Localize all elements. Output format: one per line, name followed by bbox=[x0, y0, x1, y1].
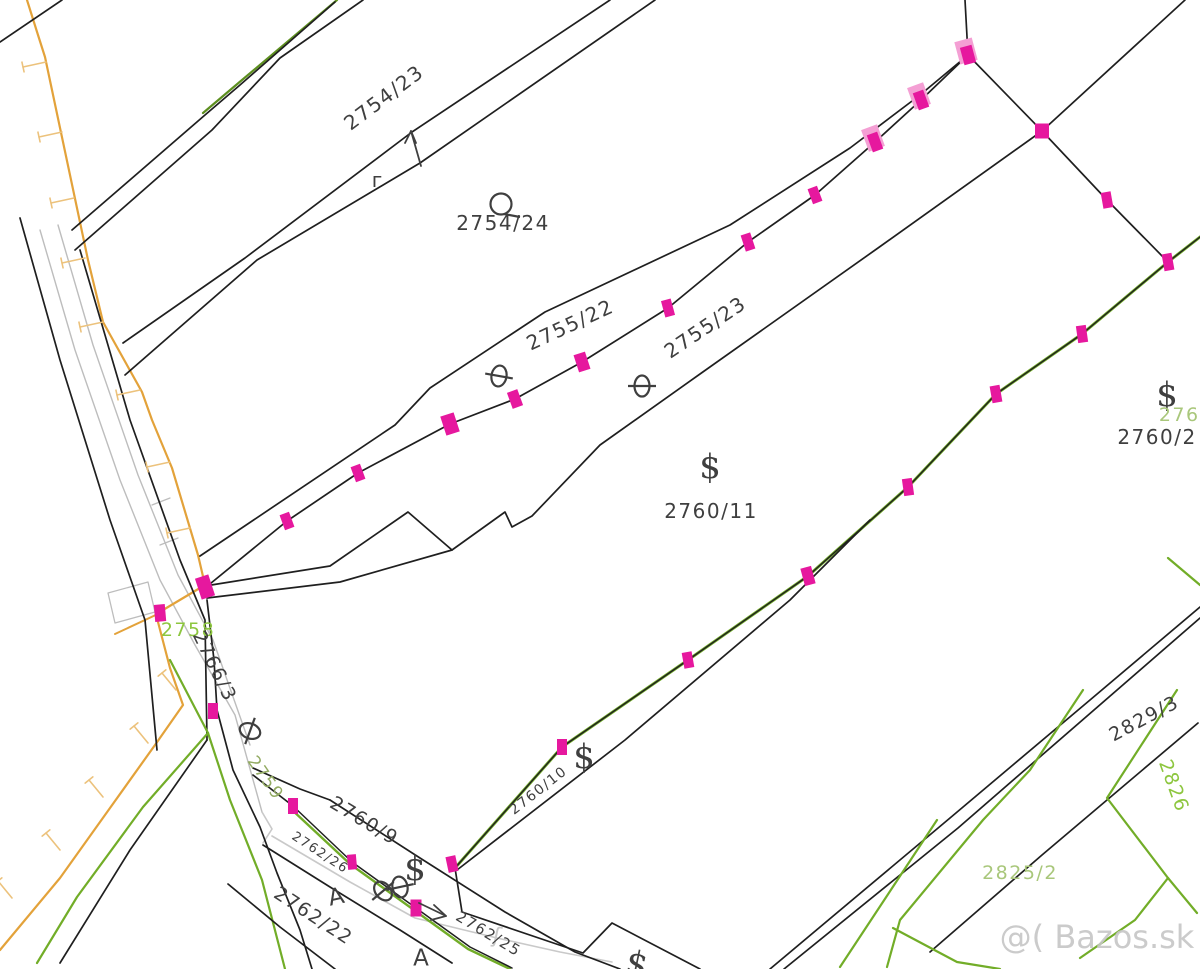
parcel-label-2759: 2759 bbox=[243, 752, 288, 804]
boundary-tick-bar bbox=[166, 528, 168, 538]
boundary-m1 bbox=[123, 0, 610, 343]
boundary-tick-bar bbox=[79, 322, 81, 332]
boundary-x1 bbox=[770, 607, 1200, 969]
boundary-change-marker bbox=[1101, 191, 1114, 208]
landuse-dollar-symbol: $ bbox=[699, 447, 721, 487]
boundary-tick-bar bbox=[146, 462, 148, 472]
boundary-change-marker bbox=[351, 464, 366, 482]
boundary-change-marker bbox=[411, 900, 422, 917]
parcel-label-2760-11: 2760/11 bbox=[664, 499, 758, 523]
boundary-change-marker bbox=[557, 739, 567, 755]
boundary-tick bbox=[117, 390, 140, 395]
parcel-label-2766-3: 2766/3 bbox=[188, 627, 241, 705]
boundary-tick bbox=[134, 726, 148, 743]
boundary-tick-bar bbox=[50, 198, 52, 208]
map-stage: $$$$$AAгʃ2754/232754/242755/222755/23276… bbox=[0, 0, 1200, 969]
boundary-tick bbox=[51, 198, 74, 203]
green-br-3 bbox=[893, 928, 1000, 969]
green-wedge-a bbox=[170, 660, 208, 733]
boundary-change-marker bbox=[682, 651, 695, 668]
landuse-theta-bar bbox=[245, 718, 255, 744]
parcel-label-2754-24: 2754/24 bbox=[456, 211, 550, 235]
boundary-change-marker bbox=[280, 512, 295, 530]
boundary-tick bbox=[80, 322, 103, 327]
parcel-label-2755-23: 2755/23 bbox=[660, 291, 751, 363]
boundary-tick-bar bbox=[116, 390, 118, 400]
boundary-change-marker bbox=[800, 566, 815, 586]
boundary-tick bbox=[0, 881, 12, 898]
parcel-label-2825-2: 2825/2 bbox=[982, 862, 1058, 884]
boundary-tick bbox=[39, 132, 62, 137]
boundary-change-marker bbox=[1035, 124, 1049, 139]
landuse-dollar-symbol: $ bbox=[404, 849, 426, 889]
boundary-topleft-a bbox=[72, 2, 335, 230]
orange-boundary-upper bbox=[27, 0, 205, 585]
landuse-dollar-symbol: $ bbox=[573, 737, 595, 777]
landuse-letter-a-symbol: A bbox=[326, 883, 347, 912]
boundary-change-marker bbox=[288, 798, 298, 814]
gray-building-outline bbox=[108, 582, 155, 623]
boundary-topleft-b bbox=[75, 0, 363, 250]
landuse-letter-ge-symbol: г bbox=[372, 168, 383, 192]
boundary-change-marker bbox=[741, 232, 756, 251]
boundary-change-marker bbox=[440, 412, 459, 435]
road-black-left bbox=[20, 218, 157, 750]
road-gray-edge-1 bbox=[40, 230, 262, 812]
parcel-label-2829-3: 2829/3 bbox=[1106, 691, 1183, 746]
parcel-label-2826: 2826 bbox=[1154, 757, 1193, 816]
boundary-tick bbox=[167, 528, 190, 533]
road-gray-stub-1 bbox=[152, 498, 170, 505]
boundary-tick bbox=[147, 462, 170, 467]
green-edge-stub bbox=[1168, 558, 1200, 585]
watermark-text: @( Bazos.sk bbox=[1000, 918, 1195, 956]
boundary-tick bbox=[46, 833, 60, 850]
green-wedge-b bbox=[37, 733, 208, 963]
boundary-tick bbox=[62, 258, 85, 263]
boundary-tick bbox=[89, 780, 103, 797]
boundary-tick-bar bbox=[38, 132, 40, 142]
boundary-change-marker bbox=[507, 389, 523, 409]
landuse-dollar-symbol: $ bbox=[622, 942, 651, 969]
parcel-label-2760-9: 2760/9 bbox=[326, 792, 402, 850]
cadastral-map-image[interactable]: $$$$$AAгʃ2754/232754/242755/222755/23276… bbox=[0, 0, 1200, 969]
boundary-change-marker bbox=[808, 186, 823, 204]
road-gray-stub-2 bbox=[160, 538, 178, 545]
boundary-change-marker bbox=[574, 352, 591, 373]
boundary-change-marker bbox=[445, 855, 458, 873]
parcel-label-2754-23: 2754/23 bbox=[339, 60, 428, 135]
parcel-label-2762-25: 2762/25 bbox=[453, 907, 525, 960]
boundary-tick-bar bbox=[22, 62, 24, 72]
parcel-label-2760: 2760 bbox=[1159, 404, 1200, 426]
parcel-label-2760-2: 2760/2 bbox=[1117, 425, 1196, 449]
boundary-change-marker bbox=[1162, 253, 1175, 271]
boundary-change-marker bbox=[208, 703, 218, 719]
boundary-change-marker bbox=[1076, 325, 1088, 343]
ownership-arrow-south-shaft bbox=[419, 903, 446, 916]
boundary-topleft-cross bbox=[0, 0, 62, 42]
boundary-change-marker bbox=[661, 298, 675, 317]
parcel-label-2762-22: 2762/22 bbox=[270, 882, 357, 949]
boundary-node-southeast bbox=[968, 55, 1168, 262]
landuse-theta-bar bbox=[485, 374, 513, 379]
boundary-tick-bar bbox=[61, 258, 63, 268]
boundary-tick bbox=[23, 62, 46, 67]
parcel-label-2755-22: 2755/22 bbox=[523, 294, 618, 355]
boundary-change-marker bbox=[195, 574, 215, 599]
landuse-letter-a-symbol: A bbox=[413, 945, 429, 969]
